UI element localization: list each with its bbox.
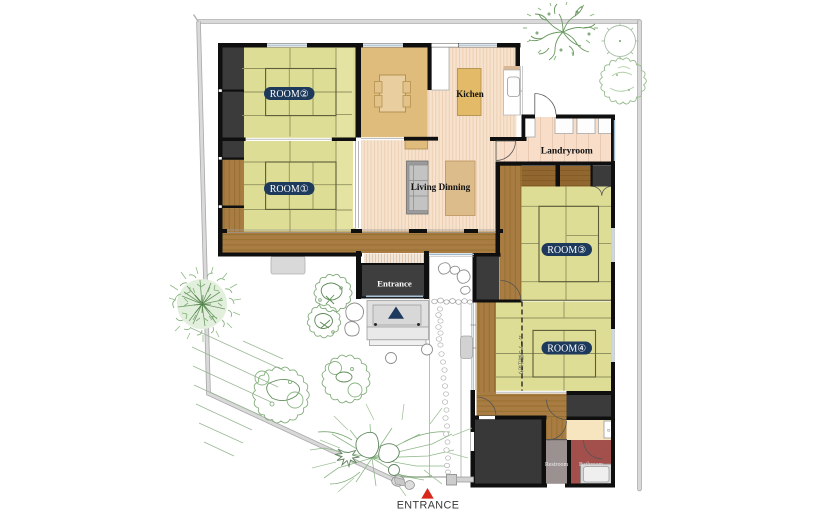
svg-text:ROOM②: ROOM② [270, 89, 309, 100]
svg-text:ROOM③: ROOM③ [547, 245, 586, 256]
svg-text:D: D [607, 428, 610, 433]
svg-text:ROOM①: ROOM① [270, 184, 309, 195]
svg-text:Bathroom: Bathroom [579, 462, 603, 468]
svg-text:Landryroom: Landryroom [541, 147, 593, 157]
svg-text:Kichen: Kichen [456, 89, 484, 99]
svg-text:Entrance: Entrance [377, 279, 412, 289]
svg-text:ROOM④: ROOM④ [547, 344, 586, 355]
svg-text:Living Dinning: Living Dinning [411, 182, 471, 192]
svg-text:Restroom: Restroom [545, 462, 569, 468]
svg-text:ENTRANCE: ENTRANCE [397, 500, 460, 512]
svg-text:カーテン間仕切り: カーテン間仕切り [517, 335, 524, 375]
